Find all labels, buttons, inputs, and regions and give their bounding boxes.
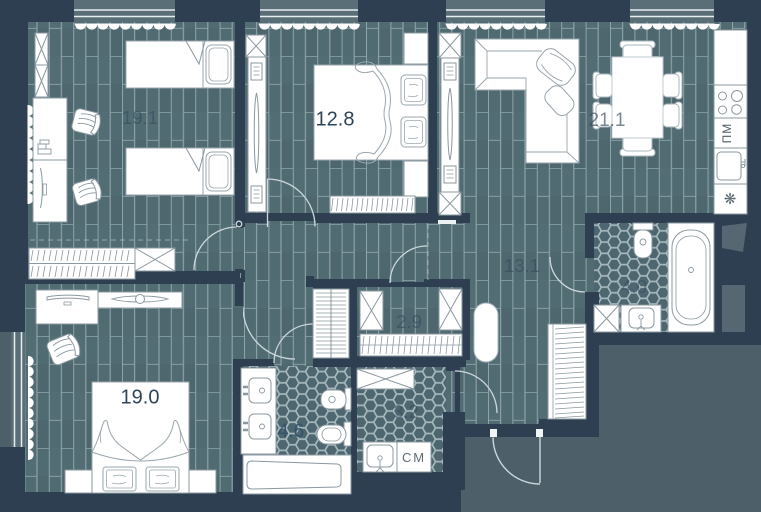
svg-text:ПМ: ПМ <box>720 123 734 144</box>
svg-text:4.0: 4.0 <box>621 276 647 297</box>
svg-text:19.1: 19.1 <box>122 107 158 128</box>
svg-text:19.0: 19.0 <box>121 387 160 409</box>
svg-text:13.1: 13.1 <box>504 255 540 276</box>
svg-text:❋: ❋ <box>724 191 737 208</box>
svg-text:3.2: 3.2 <box>393 401 419 422</box>
svg-text:12.8: 12.8 <box>316 109 355 131</box>
svg-text:21.1: 21.1 <box>589 110 626 131</box>
svg-text:СМ: СМ <box>402 450 426 465</box>
svg-text:4.6: 4.6 <box>278 421 304 442</box>
svg-text:2.9: 2.9 <box>396 311 422 332</box>
